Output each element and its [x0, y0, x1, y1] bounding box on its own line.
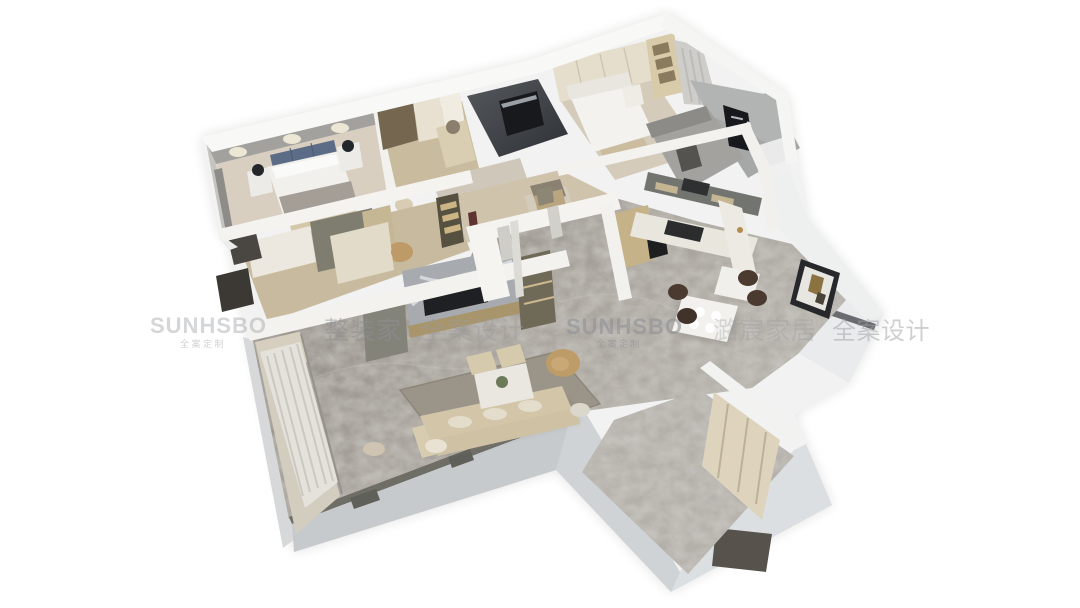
svg-text:全案设计: 全案设计	[832, 318, 930, 345]
svg-text:整装家: 整装家	[324, 317, 402, 345]
svg-text:SUNHSBO: SUNHSBO	[150, 313, 267, 338]
svg-text:SUNHSBO: SUNHSBO	[566, 314, 683, 339]
svg-text:全案设计: 全案设计	[421, 317, 525, 345]
svg-text:全 案 定 制: 全 案 定 制	[596, 338, 640, 349]
svg-text:全 案 定 制: 全 案 定 制	[180, 338, 224, 349]
svg-text:潞宸家居: 潞宸家居	[713, 317, 817, 345]
